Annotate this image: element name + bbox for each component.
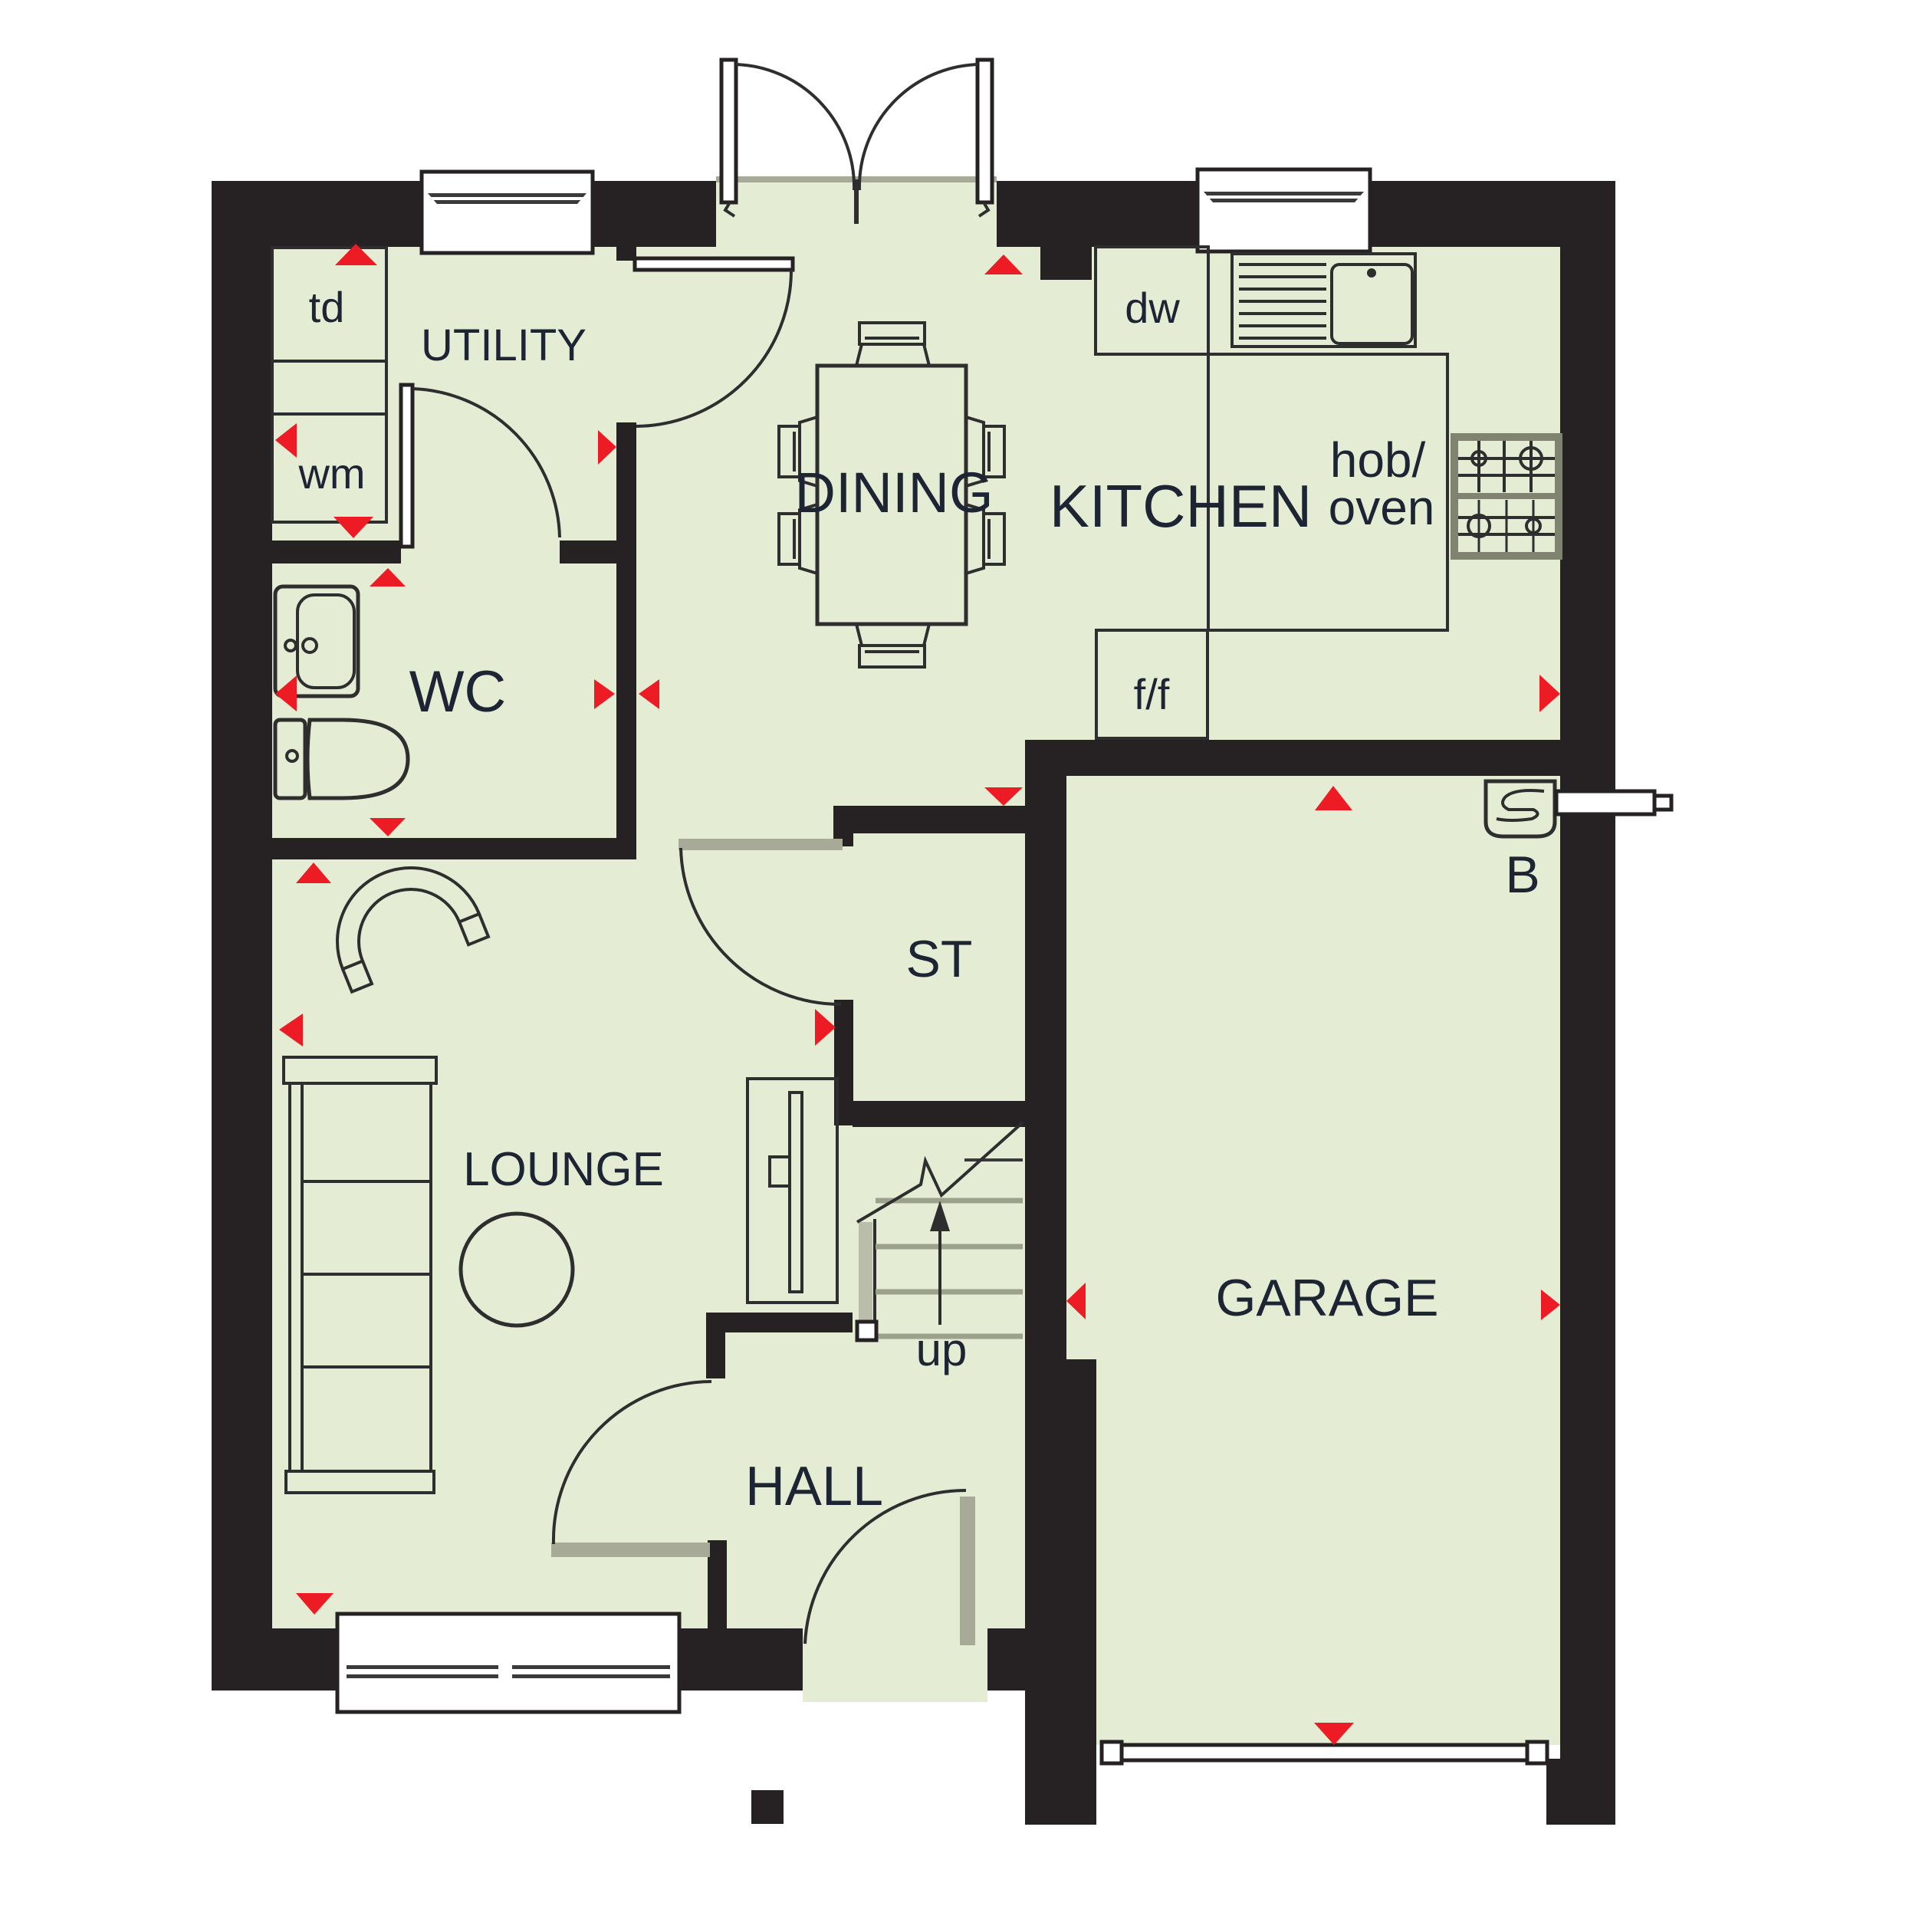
- svg-text:WC: WC: [409, 659, 507, 724]
- svg-text:B: B: [1505, 846, 1539, 904]
- svg-text:wm: wm: [297, 449, 365, 498]
- svg-text:oven: oven: [1329, 480, 1435, 535]
- svg-text:up: up: [916, 1324, 968, 1375]
- svg-text:f/f: f/f: [1134, 670, 1170, 718]
- svg-text:LOUNGE: LOUNGE: [463, 1143, 664, 1196]
- svg-text:GARAGE: GARAGE: [1216, 1269, 1439, 1327]
- svg-text:DINING: DINING: [795, 461, 994, 524]
- svg-text:UTILITY: UTILITY: [421, 320, 586, 370]
- svg-text:KITCHEN: KITCHEN: [1050, 472, 1312, 540]
- svg-text:ST: ST: [906, 930, 973, 988]
- svg-text:td: td: [309, 283, 345, 331]
- svg-text:dw: dw: [1125, 284, 1180, 332]
- svg-text:HALL: HALL: [745, 1456, 883, 1517]
